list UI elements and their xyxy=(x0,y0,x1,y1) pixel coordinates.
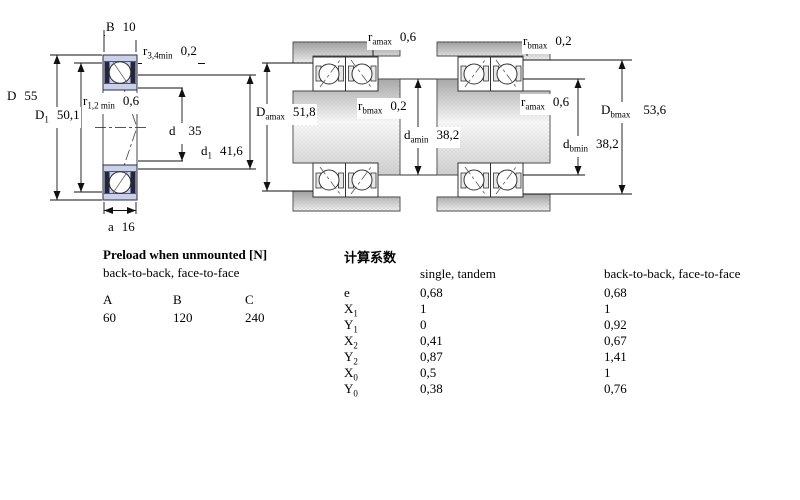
factors-table: single, tandem back-to-back, face-to-fac… xyxy=(344,266,774,397)
preload-table-title: Preload when unmounted [N] xyxy=(103,247,267,263)
factor-single-value: 0 xyxy=(420,317,604,333)
dim-label-dbmin: dbmin38,2 xyxy=(562,136,620,157)
factor-single-value: 0,5 xyxy=(420,365,604,381)
factor-btb-value: 1,41 xyxy=(604,349,774,365)
factor-btb-value: 1 xyxy=(604,301,774,317)
factor-btb-value: 0,67 xyxy=(604,333,774,349)
mounted-pair-diagram-b xyxy=(437,42,632,211)
preload-col-header: B xyxy=(173,292,245,310)
bearing-section-top xyxy=(103,55,137,90)
factor-symbol: X0 xyxy=(344,365,420,381)
factor-single-value: 0,68 xyxy=(420,285,604,301)
dim-label-Damax: Damax51,8 xyxy=(255,104,317,125)
preload-value: 240 xyxy=(245,310,305,326)
dim-label-r34min: r3,4min0,2 xyxy=(142,43,198,64)
preload-table: A B C 60 120 240 xyxy=(103,292,305,326)
factors-col2-header: back-to-back, face-to-face xyxy=(604,266,774,285)
dim-label-d1: d141,6 xyxy=(200,143,244,164)
factor-symbol: X1 xyxy=(344,301,420,317)
bearing-datasheet-page: B10 r3,4min0,2 D55 r1,2 min0,6 D150,1 d3… xyxy=(0,0,800,500)
dim-label-outer-diameter-D: D55 xyxy=(6,88,38,109)
preload-col-header: A xyxy=(103,292,173,310)
pair-b-bearings-top xyxy=(458,57,523,91)
dim-label-r12min: r1,2 min0,6 xyxy=(82,93,140,114)
mounted-pair-diagram-a xyxy=(262,41,437,211)
bearing-section-bottom xyxy=(103,165,137,200)
factor-btb-value: 0,76 xyxy=(604,381,774,397)
factor-btb-value: 0,92 xyxy=(604,317,774,333)
dim-label-damin: damin38,2 xyxy=(403,127,460,148)
preload-value: 120 xyxy=(173,310,245,326)
dim-label-rbmax-b: rbmax0,2 xyxy=(522,33,573,54)
dim-label-bore-diameter-d: d35 xyxy=(168,123,203,144)
factor-single-value: 1 xyxy=(420,301,604,317)
dim-label-ramax-a: ramax0,6 xyxy=(367,29,417,50)
dim-label-a: a16 xyxy=(107,219,136,240)
pair-a-bearings-top xyxy=(313,57,378,91)
preload-col-header: C xyxy=(245,292,305,310)
preload-value: 60 xyxy=(103,310,173,326)
factor-symbol: Y1 xyxy=(344,317,420,333)
factors-col1-header: single, tandem xyxy=(420,266,604,285)
factor-symbol: Y2 xyxy=(344,349,420,365)
factors-empty-header xyxy=(344,266,420,285)
factors-table-title: 计算系数 xyxy=(344,247,396,266)
dim-label-Dbmax: Dbmax53,6 xyxy=(600,102,667,123)
factor-symbol: X2 xyxy=(344,333,420,349)
factor-single-value: 0,41 xyxy=(420,333,604,349)
dim-label-ramax-b: ramax0,6 xyxy=(520,94,570,115)
dim-label-rbmax-a: rbmax0,2 xyxy=(357,98,408,119)
preload-table-subtitle: back-to-back, face-to-face xyxy=(103,265,239,281)
dim-label-width-B: B10 xyxy=(105,19,137,40)
pair-a-bearings-bottom xyxy=(313,163,378,197)
factor-btb-value: 1 xyxy=(604,365,774,381)
factor-symbol: e xyxy=(344,285,420,301)
dim-label-D1: D150,1 xyxy=(34,107,81,128)
factor-btb-value: 0,68 xyxy=(604,285,774,301)
factor-symbol: Y0 xyxy=(344,381,420,397)
factor-single-value: 0,87 xyxy=(420,349,604,365)
pair-b-bearings-bottom xyxy=(458,163,523,197)
factor-single-value: 0,38 xyxy=(420,381,604,397)
